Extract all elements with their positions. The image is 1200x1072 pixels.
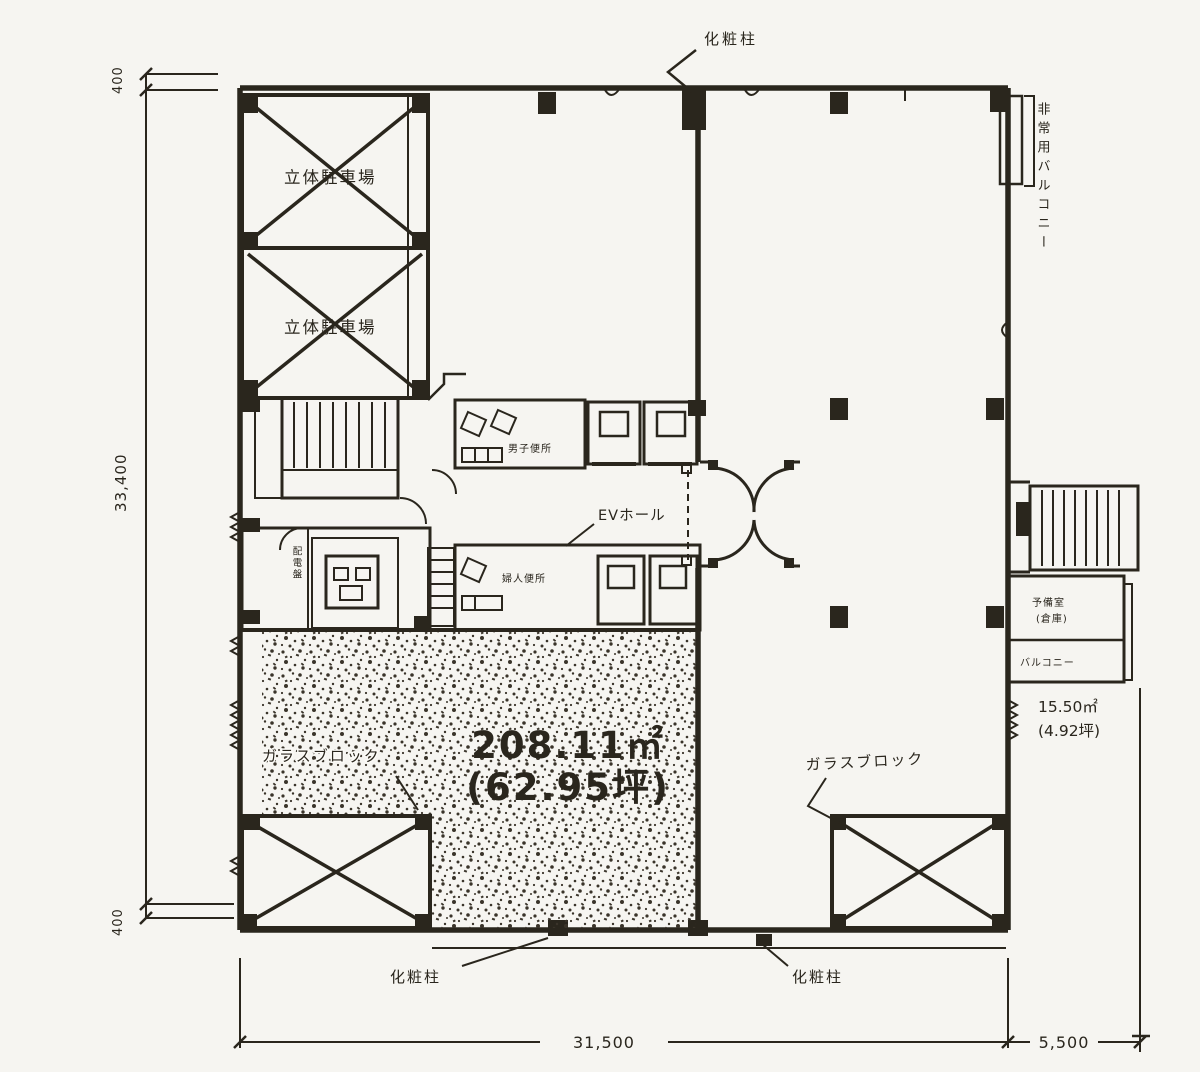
parking-block: 立体駐車場 立体駐車場	[242, 95, 428, 398]
braced-box-left	[242, 816, 430, 928]
annex-balcony-label: バルコニー	[1020, 657, 1075, 669]
bottom-left-column-label: 化粧柱	[390, 968, 441, 986]
glass-block-left-label: ガラスブロック	[262, 747, 381, 765]
stair-left	[255, 374, 466, 524]
dim-left-total: 33,400	[112, 454, 130, 513]
wc-ev-core: 男子便所 EVホール 婦人便所	[242, 400, 700, 630]
annex-room-name: 予備室	[1032, 596, 1065, 609]
main-area-sqm: 208.11㎡	[471, 724, 665, 767]
floor-plan-scan: 立体駐車場 立体駐車場 配電盤	[0, 0, 1200, 1072]
panel-room-label: 配電盤	[291, 546, 303, 581]
ev-hall-label: EVホール	[598, 508, 666, 524]
bottom-right-column-label: 化粧柱	[792, 968, 843, 986]
annex-area-sqm: 15.50㎡	[1038, 698, 1098, 716]
dim-left-offset-top: 400	[111, 66, 126, 94]
parking-upper-label: 立体駐車場	[284, 168, 377, 187]
glass-block-right-label: ガラスブロック	[805, 750, 924, 774]
dim-bottom-annex: 5,500	[1039, 1033, 1090, 1052]
annex-area-tsubo: (4.92坪)	[1038, 722, 1100, 740]
top-column-label: 化粧柱	[704, 30, 758, 48]
annex-room-sub: (倉庫)	[1036, 612, 1068, 625]
dim-bottom-main: 31,500	[573, 1033, 635, 1052]
balcony-right-label: 非常用バルコニー	[1035, 102, 1051, 254]
wc-lower-label: 婦人便所	[502, 572, 546, 585]
top-column-mark	[682, 88, 706, 130]
right-annex: 予備室 (倉庫) バルコニー 15.50㎡ (4.92坪)	[1008, 482, 1138, 740]
parking-lower-label: 立体駐車場	[284, 318, 377, 337]
braced-box-right: ガラスブロック	[805, 750, 1006, 928]
utility-rooms: 配電盤	[242, 528, 430, 630]
entrance-vestibule	[700, 460, 800, 568]
tenant-area: 208.11㎡ (62.95坪) ガラスブロック	[262, 632, 696, 928]
wc-upper-label: 男子便所	[508, 442, 552, 455]
dim-left-offset-bottom: 400	[111, 908, 126, 936]
main-area-tsubo: (62.95坪)	[466, 766, 670, 809]
dimension-left: 400 33,400 400	[111, 66, 234, 936]
